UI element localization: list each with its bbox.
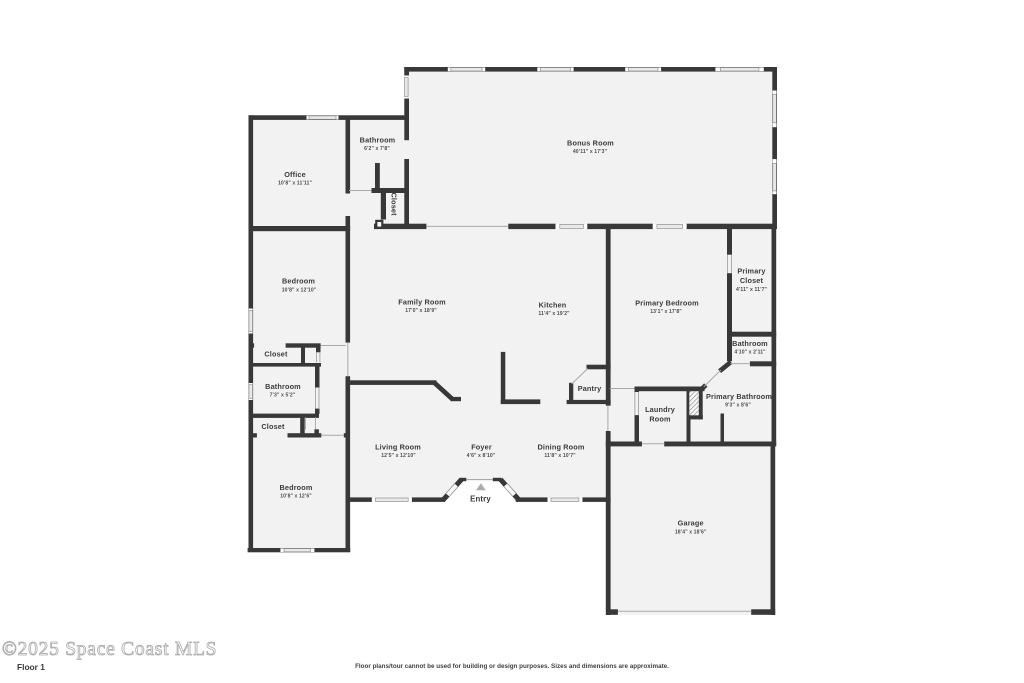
svg-text:Bonus Room: Bonus Room — [567, 139, 614, 148]
svg-text:10’8" x 12’6": 10’8" x 12’6" — [280, 494, 312, 500]
svg-text:Bathroom: Bathroom — [732, 339, 768, 348]
svg-text:Laundry: Laundry — [645, 405, 676, 414]
svg-text:9’3" x 8’6": 9’3" x 8’6" — [725, 403, 751, 409]
svg-text:Living Room: Living Room — [375, 443, 421, 452]
svg-text:Room: Room — [649, 415, 671, 424]
svg-text:Entry: Entry — [470, 495, 491, 504]
svg-text:12’5" x 12’10": 12’5" x 12’10" — [381, 453, 416, 459]
svg-text:Closet: Closet — [740, 276, 764, 285]
svg-text:Closet: Closet — [264, 350, 288, 359]
svg-text:4’6" x 8’10": 4’6" x 8’10" — [467, 453, 496, 459]
svg-text:11’4" x 19’2": 11’4" x 19’2" — [538, 311, 570, 317]
svg-text:4’11" x 11’7": 4’11" x 11’7" — [736, 287, 768, 293]
svg-text:7’3" x 5’2": 7’3" x 5’2" — [270, 393, 296, 399]
svg-text:Bathroom: Bathroom — [265, 382, 301, 391]
svg-text:Garage: Garage — [678, 519, 704, 528]
svg-text:10’8" x 12’10": 10’8" x 12’10" — [282, 287, 317, 293]
svg-text:17’0" x 18’9": 17’0" x 18’9" — [405, 308, 437, 314]
svg-text:Dining Room: Dining Room — [537, 443, 584, 452]
svg-text:6’2" x 7’8": 6’2" x 7’8" — [364, 146, 390, 152]
svg-text:Foyer: Foyer — [471, 443, 492, 452]
svg-text:4’10" x 2’11": 4’10" x 2’11" — [734, 349, 766, 355]
svg-text:Office: Office — [284, 170, 306, 179]
svg-text:13’1" x 17’8": 13’1" x 17’8" — [650, 309, 682, 315]
svg-text:Closet: Closet — [390, 192, 399, 216]
svg-text:Primary Bedroom: Primary Bedroom — [635, 299, 699, 308]
svg-text:40’11" x 17’3": 40’11" x 17’3" — [573, 149, 608, 155]
svg-text:18’4" x 18’6": 18’4" x 18’6" — [675, 529, 707, 535]
svg-text:Kitchen: Kitchen — [539, 301, 567, 310]
svg-text:10’8" x 11’11": 10’8" x 11’11" — [278, 180, 312, 186]
svg-text:11’8" x 10’7": 11’8" x 10’7" — [544, 453, 576, 459]
svg-text:Bedroom: Bedroom — [282, 277, 315, 286]
svg-text:Family Room: Family Room — [398, 298, 446, 307]
svg-text:Bathroom: Bathroom — [360, 136, 396, 145]
svg-text:Pantry: Pantry — [578, 384, 602, 393]
svg-text:Bedroom: Bedroom — [279, 483, 312, 492]
svg-text:Primary: Primary — [737, 267, 766, 276]
svg-text:Closet: Closet — [261, 422, 285, 431]
svg-text:Primary Bathroom: Primary Bathroom — [706, 392, 772, 401]
